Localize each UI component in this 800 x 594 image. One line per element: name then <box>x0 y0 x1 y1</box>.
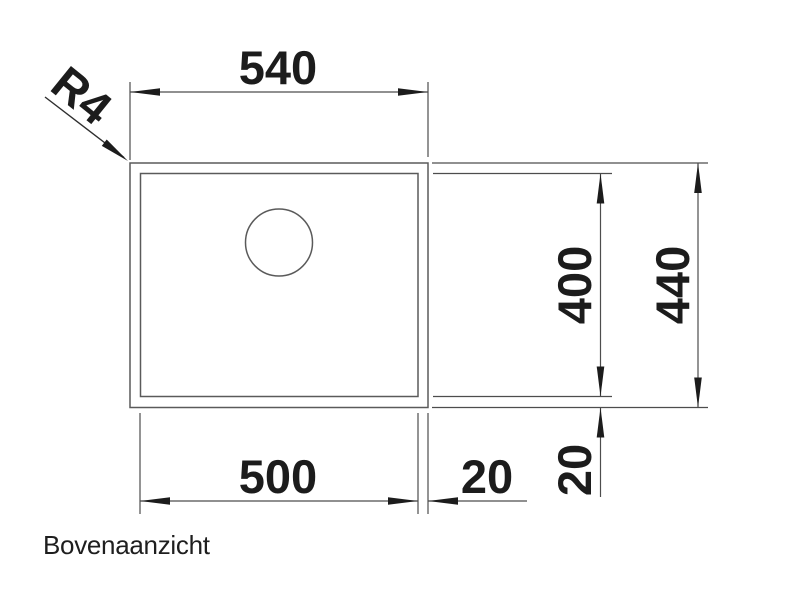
sink-bowl-edge <box>141 174 419 397</box>
view-caption: Bovenaanzicht <box>43 530 211 560</box>
radius-label: R4 <box>42 56 122 135</box>
arrowhead-down <box>597 367 605 397</box>
drain-hole <box>246 209 313 276</box>
dim-bowl-depth-label: 400 <box>548 246 601 324</box>
sink-outer-edge <box>130 163 428 408</box>
dim-bowl-width-label: 500 <box>239 450 317 503</box>
dim-bowl-width: 500 <box>140 413 418 514</box>
dim-outer-width-label: 540 <box>239 41 317 94</box>
dim-outer-depth-label: 440 <box>646 246 699 324</box>
sink-top-view-drawing: 540 R4 400 440 <box>0 0 800 594</box>
arrowhead-right <box>398 88 428 96</box>
radius-callout: R4 <box>42 56 128 161</box>
drawing-page: 540 R4 400 440 <box>0 0 800 594</box>
arrowhead-right <box>388 497 418 505</box>
dim-outer-width: 540 <box>130 41 428 160</box>
dim-rim-right-label: 20 <box>461 450 513 503</box>
sink-geometry <box>130 163 428 408</box>
arrowhead-left <box>428 497 458 505</box>
arrowhead-left <box>130 88 160 96</box>
dim-rim-bottom-label: 20 <box>548 444 601 496</box>
arrowhead-up <box>694 163 702 193</box>
dim-rim-right: 20 <box>418 413 527 514</box>
dim-bowl-depth: 400 <box>433 174 612 397</box>
dim-rim-bottom: 20 <box>548 408 604 498</box>
arrowhead-up <box>597 408 605 438</box>
arrowhead-up <box>597 174 605 204</box>
arrowhead-down <box>694 378 702 408</box>
leader-arrowhead <box>102 140 128 162</box>
arrowhead-left <box>140 497 170 505</box>
